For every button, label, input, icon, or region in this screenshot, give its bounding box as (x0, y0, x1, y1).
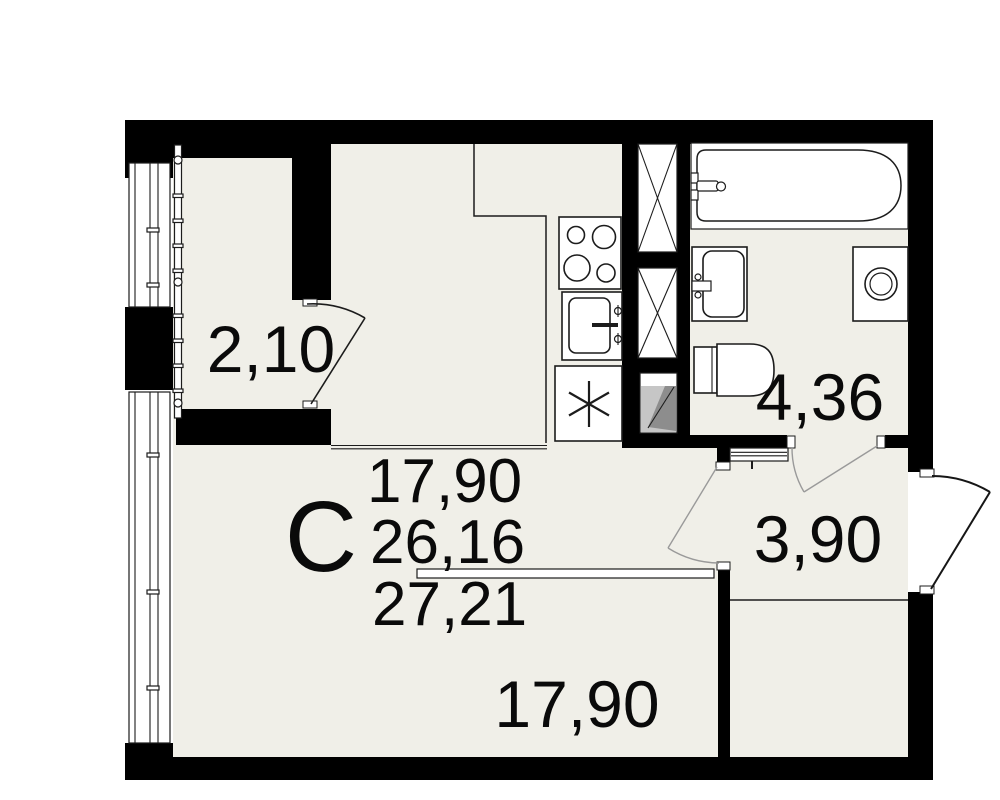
wall-balcony-bottom (176, 409, 331, 445)
jamb-room-top (716, 462, 730, 470)
floor-plan-drawing: 2,10 С 17,90 26,16 27,21 4,36 3,90 17,90 (0, 0, 1000, 800)
electrical-panel-icon (730, 448, 788, 461)
glazing-tick (173, 314, 183, 318)
area-line-3: 27,21 (372, 570, 527, 639)
glazing-tick (173, 269, 183, 273)
entrance-door-swing-icon (932, 476, 990, 492)
glazing-joint (174, 156, 182, 164)
washing-machine-drum-inner (870, 273, 892, 295)
sink-faucet-knob (695, 292, 701, 298)
hallway-area-label: 3,90 (754, 502, 882, 576)
jamb-bathroom-right (877, 436, 885, 448)
glazing-tick (173, 219, 183, 223)
glazing-tick (173, 389, 183, 393)
glazing-tick (173, 244, 183, 248)
glazing-tick (173, 194, 183, 198)
unit-type-label: С (285, 481, 357, 593)
area-line-2: 26,16 (370, 508, 525, 577)
stove-burner (593, 226, 616, 249)
jamb-balcony-top (303, 299, 317, 306)
wall-hallway-west (718, 570, 730, 758)
wall-balcony-kitchen (292, 157, 331, 300)
stove-burner (568, 227, 585, 244)
wall-bathroom-bottom-left (680, 435, 787, 448)
window-tick (147, 686, 159, 690)
sink-faucet-knob (695, 274, 701, 280)
wall-bathroom-bottom-right (885, 435, 908, 448)
window-tick (147, 590, 159, 594)
balcony-glazing (173, 145, 183, 418)
stove-burner (564, 255, 590, 281)
wall-left-mid (125, 307, 173, 390)
window-tick (147, 228, 159, 232)
window-tick (147, 453, 159, 457)
balcony-area-label: 2,10 (207, 312, 335, 386)
glazing-joint (174, 278, 182, 286)
glazing-tick (173, 364, 183, 368)
window-tick (147, 283, 159, 287)
entrance-door-leaf (931, 492, 990, 589)
jamb-entrance-top (920, 469, 934, 477)
jamb-bathroom-left (787, 436, 795, 448)
bathtub-faucet-spout (697, 181, 718, 191)
wall-right-bottom (908, 592, 933, 780)
glazing-tick (173, 339, 183, 343)
wall-bottom (125, 757, 932, 780)
bathroom-area-label: 4,36 (756, 360, 884, 434)
area-line-1: 17,90 (367, 447, 522, 516)
jamb-balcony-bottom (303, 401, 317, 408)
stove-burner (597, 264, 615, 282)
sink-faucet-spout (692, 281, 711, 291)
living-room-area-label: 17,90 (494, 667, 659, 741)
windows (129, 163, 170, 743)
bathtub-faucet-end (717, 182, 726, 191)
wall-hallway-stub (717, 447, 730, 463)
ventilation-shafts (638, 144, 677, 433)
toilet-tank (694, 347, 717, 393)
bathtub-faucet (691, 190, 698, 200)
floor-plan-page: 2,10 С 17,90 26,16 27,21 4,36 3,90 17,90 (0, 0, 1000, 800)
wall-right-top (908, 120, 933, 472)
glazing-joint (174, 399, 182, 407)
